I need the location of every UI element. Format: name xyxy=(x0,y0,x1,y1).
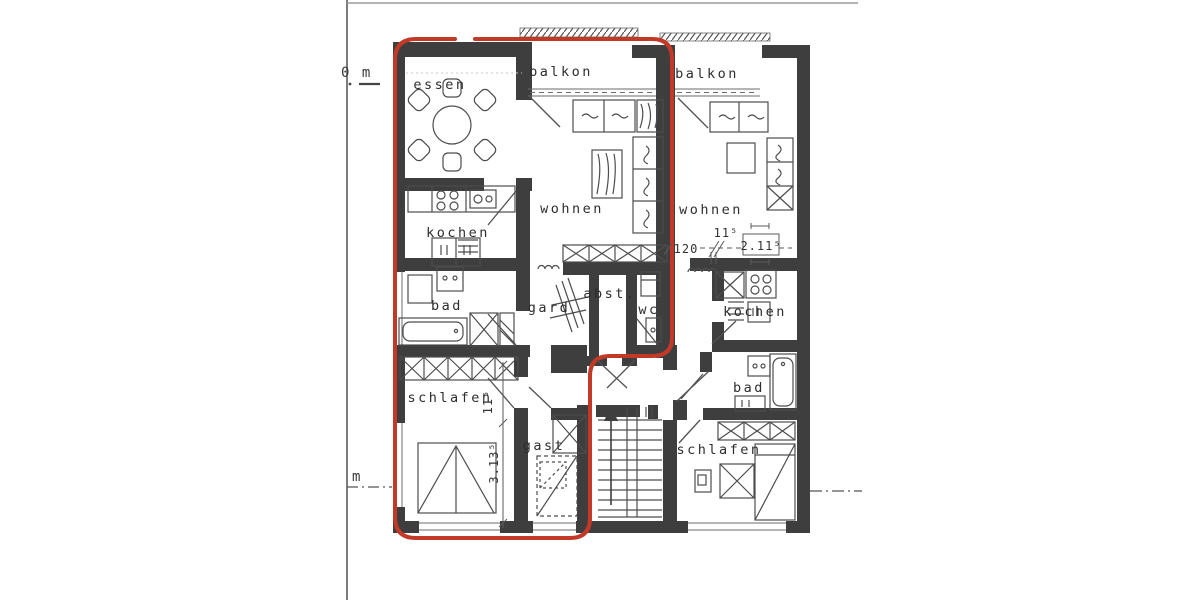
room-label-balkon-right: balkon xyxy=(675,66,739,82)
room-label-wohnen-left: wohnen xyxy=(540,201,604,217)
living-room-furniture xyxy=(538,100,667,269)
room-label-gard: gard xyxy=(528,300,571,316)
room-label-gast: gast xyxy=(523,438,566,454)
stairwell xyxy=(598,406,662,517)
dim-115-left: 11⁵ xyxy=(481,390,495,415)
dim-2115: 2.11⁵ xyxy=(740,239,781,253)
dim-3135: 3.13⁵ xyxy=(487,442,501,483)
room-label-schlafen-right: schlafen xyxy=(676,442,761,458)
scale-dot xyxy=(349,83,352,86)
room-label-abst: abst. xyxy=(583,286,636,302)
bedroom-furniture xyxy=(400,357,518,513)
balcony-railing-right xyxy=(660,33,770,41)
scale-bottom-label: m xyxy=(352,469,362,485)
balcony-railing-left xyxy=(520,28,638,37)
room-label-essen: essen xyxy=(413,77,466,93)
dim-115-right: 11⁵ xyxy=(714,226,739,240)
room-label-balkon-left: balkon xyxy=(529,64,593,80)
scale-bar: 0 m m xyxy=(341,65,862,491)
room-label-bad-left: bad xyxy=(431,298,463,314)
room-label-kochen-left: kochen xyxy=(426,225,490,241)
bedroom-right xyxy=(695,422,795,520)
room-label-wohnen-right: wohnen xyxy=(679,202,743,218)
dim-120: 120 xyxy=(674,242,699,256)
scale-top-label: 0 m xyxy=(341,65,372,81)
floor-plan-drawing: 0 m m xyxy=(0,0,1200,600)
floor-plan-page: 0 m m xyxy=(0,0,1200,600)
room-label-kochen-right: kochen xyxy=(723,304,787,320)
room-label-schlafen-left: schlafen xyxy=(407,390,492,406)
room-label-wc: wc xyxy=(638,302,659,318)
room-label-bad-right: bad xyxy=(733,380,765,396)
